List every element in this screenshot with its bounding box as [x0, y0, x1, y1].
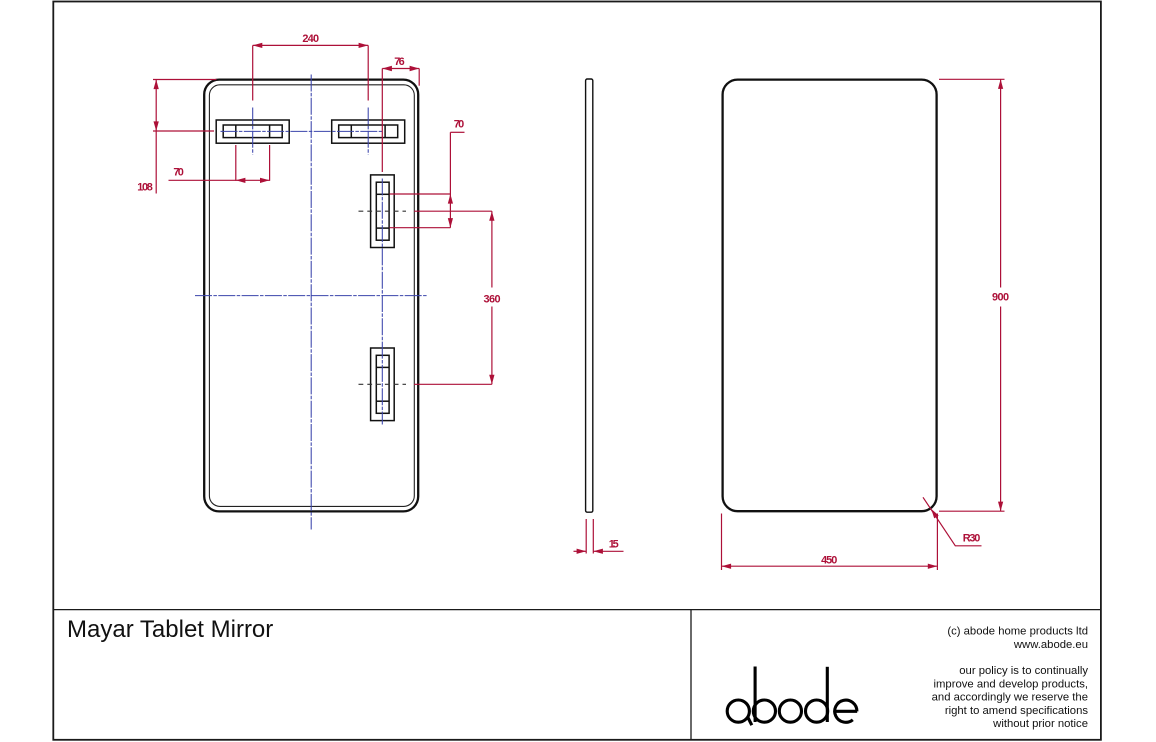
svg-text:450: 450: [821, 555, 837, 567]
svg-text:right to amend specifications: right to amend specifications: [945, 705, 1089, 717]
svg-text:240: 240: [302, 33, 319, 45]
svg-text:www.abode.eu: www.abode.eu: [1013, 639, 1088, 651]
svg-text:Mayar Tablet Mirror: Mayar Tablet Mirror: [67, 616, 273, 643]
svg-text:70: 70: [173, 166, 183, 178]
svg-text:76: 76: [394, 56, 404, 68]
svg-text:108: 108: [137, 182, 153, 194]
svg-text:R30: R30: [963, 532, 981, 544]
svg-text:our policy is to continually: our policy is to continually: [959, 665, 1088, 677]
svg-text:without prior notice: without prior notice: [992, 718, 1088, 730]
svg-text:(c) abode home products ltd: (c) abode home products ltd: [947, 626, 1088, 638]
svg-text:900: 900: [992, 292, 1009, 304]
svg-text:improve and develop products,: improve and develop products,: [934, 678, 1088, 690]
svg-text:360: 360: [484, 294, 501, 306]
svg-text:70: 70: [454, 119, 464, 131]
svg-text:15: 15: [609, 539, 619, 551]
svg-text:and accordingly we reserve the: and accordingly we reserve the: [932, 692, 1088, 704]
